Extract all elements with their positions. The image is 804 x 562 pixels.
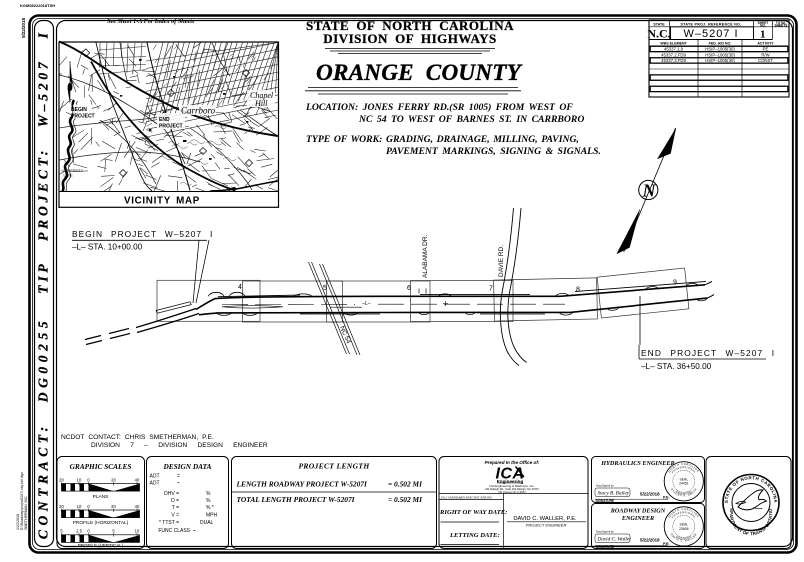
svg-text:PROFILE (HORIZONTAL): PROFILE (HORIZONTAL) bbox=[73, 520, 129, 526]
svg-text:TIP PROJECT: W–5207 I: TIP PROJECT: W–5207 I bbox=[36, 29, 51, 293]
svg-text:0: 0 bbox=[87, 477, 90, 482]
svg-text:% *: % * bbox=[206, 505, 214, 511]
svg-text:= 0.502 MI: = 0.502 MI bbox=[388, 480, 423, 489]
svg-text:8: 8 bbox=[576, 287, 580, 294]
svg-text:KGM05222018TSH: KGM05222018TSH bbox=[20, 3, 55, 8]
svg-text:DocuSigned by:: DocuSigned by: bbox=[596, 529, 615, 533]
svg-text:PROFILE (VERTICAL): PROFILE (VERTICAL) bbox=[78, 543, 124, 548]
svg-text:CONTRACT: DG00255: CONTRACT: DG00255 bbox=[36, 317, 51, 539]
svg-text:Prepared In the Office of:: Prepared In the Office of: bbox=[485, 460, 540, 465]
svg-text:20: 20 bbox=[111, 477, 116, 482]
svg-text:Stacy B. Bailey: Stacy B. Bailey bbox=[598, 490, 630, 496]
svg-text:ORANGE COUNTY: ORANGE COUNTY bbox=[316, 60, 523, 86]
svg-text:MPH: MPH bbox=[206, 513, 218, 519]
svg-text:Carrboro: Carrboro bbox=[181, 106, 216, 116]
svg-text:R/W: R/W bbox=[761, 52, 770, 57]
svg-text:SMETHERMAN, INC.: SMETHERMAN, INC. bbox=[24, 495, 28, 530]
svg-text:45337.1.9: 45337.1.9 bbox=[664, 47, 684, 52]
svg-text:–L– STA. 10+00.00: –L– STA. 10+00.00 bbox=[72, 243, 143, 252]
svg-text:NCDOT CONTACT: CHRIS SMETHERM: NCDOT CONTACT: CHRIS SMETHERMAN, P.E. bbox=[61, 434, 214, 441]
svg-text:5: 5 bbox=[60, 529, 63, 534]
svg-text:ADT: ADT bbox=[150, 474, 160, 480]
svg-text:ALABAMA DR.: ALABAMA DR. bbox=[422, 234, 429, 278]
svg-text:RIGHT OF WAY DATE:: RIGHT OF WAY DATE: bbox=[439, 509, 507, 516]
svg-text:20: 20 bbox=[59, 477, 64, 482]
svg-text:2.5: 2.5 bbox=[76, 529, 82, 534]
svg-text:40: 40 bbox=[135, 477, 140, 482]
svg-text:23606: 23606 bbox=[679, 527, 689, 531]
svg-text:HSIP–1005(30): HSIP–1005(30) bbox=[705, 52, 735, 57]
svg-text:GRAPHIC SCALES: GRAPHIC SCALES bbox=[70, 462, 132, 471]
svg-text:PROJECT ENGINEER: PROJECT ENGINEER bbox=[526, 523, 567, 528]
svg-text:LETTING DATE:: LETTING DATE: bbox=[449, 532, 500, 539]
svg-text:DHV =: DHV = bbox=[164, 491, 179, 497]
svg-text:SIGNATURE: SIGNATURE bbox=[596, 545, 615, 549]
svg-text:40: 40 bbox=[135, 504, 140, 509]
svg-text:DocuSigned by:: DocuSigned by: bbox=[596, 483, 615, 487]
svg-text:V =: V = bbox=[171, 513, 179, 519]
svg-text:0: 0 bbox=[87, 504, 90, 509]
svg-text:See Sheet 1-A For Index of She: See Sheet 1-A For Index of Sheets bbox=[107, 18, 195, 25]
svg-text:HSIP–1005(30): HSIP–1005(30) bbox=[705, 58, 735, 63]
svg-text:DIVISION 7 – DIVISION DESI: DIVISION 7 – DIVISION DESIGN ENGINEER bbox=[91, 442, 268, 449]
svg-text:David C. Waller: David C. Waller bbox=[597, 536, 633, 542]
svg-text:5/22/2018: 5/22/2018 bbox=[21, 17, 26, 38]
svg-text:10: 10 bbox=[77, 477, 82, 482]
svg-text:DUAL: DUAL bbox=[200, 520, 214, 526]
svg-text:ACTIVITY: ACTIVITY bbox=[757, 41, 774, 45]
svg-text:P.E.: P.E. bbox=[663, 496, 670, 500]
svg-text:ADT: ADT bbox=[150, 481, 160, 487]
svg-text:* TTST =: * TTST = bbox=[159, 520, 179, 526]
svg-text:PROJECT: PROJECT bbox=[159, 124, 183, 130]
svg-text:%: % bbox=[206, 491, 211, 497]
svg-text:LAKE: LAKE bbox=[64, 173, 74, 177]
svg-text:NC License No. F-0672: NC License No. F-0672 bbox=[498, 490, 526, 494]
svg-text:CONST: CONST bbox=[758, 58, 773, 63]
svg-text:NC 54: NC 54 bbox=[338, 325, 352, 345]
svg-text:1: 1 bbox=[760, 28, 766, 40]
svg-text:ENGINEER: ENGINEER bbox=[621, 515, 654, 522]
svg-text:PE: PE bbox=[763, 47, 769, 52]
svg-text:DAVIE RD.: DAVIE RD. bbox=[498, 245, 505, 277]
svg-text:10: 10 bbox=[135, 529, 140, 534]
svg-text:HSIP–1005(30): HSIP–1005(30) bbox=[705, 47, 735, 52]
svg-text:–L–: –L– bbox=[362, 301, 371, 307]
svg-text:HYDRAULICS ENGINEER: HYDRAULICS ENGINEER bbox=[600, 460, 674, 467]
svg-text:Hill: Hill bbox=[254, 99, 268, 108]
svg-text:20: 20 bbox=[111, 504, 116, 509]
svg-text:5/22/2018: 5/22/2018 bbox=[640, 492, 660, 497]
svg-text:N: N bbox=[642, 181, 657, 201]
svg-text:PAVEMENT MARKINGS, SIGNING & S: PAVEMENT MARKINGS, SIGNING & SIGNALS. bbox=[386, 146, 601, 157]
svg-text:45337.3.FD9: 45337.3.FD9 bbox=[661, 58, 686, 63]
svg-text:END: END bbox=[159, 117, 170, 123]
svg-text:SHEETS: SHEETS bbox=[775, 24, 788, 28]
svg-text:END PROJECT W–5207 I: END PROJECT W–5207 I bbox=[641, 348, 775, 358]
svg-text:–: – bbox=[193, 528, 196, 534]
svg-text:NC 54 TO WEST OF BARNES ST. IN: NC 54 TO WEST OF BARNES ST. IN CARRBORO bbox=[358, 114, 584, 125]
svg-text:4: 4 bbox=[238, 284, 242, 291]
svg-text:=: = bbox=[177, 474, 180, 480]
svg-text:%: % bbox=[206, 498, 211, 504]
svg-text:TYPE OF WORK: GRADING, DRAINAG: TYPE OF WORK: GRADING, DRAINAGE, MILLING… bbox=[306, 134, 579, 145]
svg-text:T =: T = bbox=[172, 505, 179, 511]
svg-text:9: 9 bbox=[673, 280, 677, 287]
svg-text:2012 STANDARD SPECIFICATIONS: 2012 STANDARD SPECIFICATIONS bbox=[441, 495, 493, 499]
svg-text:BEGIN PROJECT W–5207 I: BEGIN PROJECT W–5207 I bbox=[72, 229, 213, 239]
svg-text:LOCATION: JONES FERRY RD.(SR 1: LOCATION: JONES FERRY RD.(SR 1005) FROM … bbox=[305, 102, 573, 113]
svg-text:W–5207 I: W–5207 I bbox=[683, 28, 738, 40]
svg-text:PROJECT: PROJECT bbox=[71, 114, 95, 120]
svg-text:SIGNATURE: SIGNATURE bbox=[596, 499, 615, 503]
svg-text:45337.2.FD9: 45337.2.FD9 bbox=[661, 52, 686, 57]
svg-text:VICINITY MAP: VICINITY MAP bbox=[124, 196, 200, 207]
svg-text:7: 7 bbox=[489, 286, 493, 293]
svg-text:WBS ELEMENT: WBS ELEMENT bbox=[660, 41, 687, 45]
svg-text:PLANS: PLANS bbox=[93, 494, 109, 500]
svg-text:6: 6 bbox=[407, 285, 411, 292]
svg-text:–: – bbox=[177, 481, 180, 487]
svg-text:NO.: NO. bbox=[760, 24, 766, 28]
svg-text:5: 5 bbox=[112, 529, 115, 534]
svg-text:BEGIN: BEGIN bbox=[71, 107, 87, 113]
svg-text:DESIGN DATA: DESIGN DATA bbox=[162, 462, 211, 471]
svg-text:STATE PROJ. REFERENCE NO.: STATE PROJ. REFERENCE NO. bbox=[680, 22, 741, 26]
svg-text:FED. AID NO.: FED. AID NO. bbox=[709, 41, 732, 45]
svg-text:N.C.: N.C. bbox=[647, 27, 670, 41]
svg-text:TOTAL LENGTH PROJECT W-5207: TOTAL LENGTH PROJECT W-5207I bbox=[237, 495, 356, 504]
svg-text:PROJECT LENGTH: PROJECT LENGTH bbox=[298, 462, 370, 471]
svg-text:ROADWAY DESIGN: ROADWAY DESIGN bbox=[610, 508, 666, 515]
svg-text:5/22/2018: 5/22/2018 bbox=[640, 538, 660, 543]
svg-text:10: 10 bbox=[77, 504, 82, 509]
svg-text:24451: 24451 bbox=[679, 482, 689, 486]
svg-text:LENGTH ROADWAY PROJECT W-52: LENGTH ROADWAY PROJECT W-5207I bbox=[236, 480, 368, 489]
svg-text:20: 20 bbox=[59, 504, 64, 509]
svg-text:D =: D = bbox=[171, 498, 179, 504]
svg-text:DAVID C. WALLER, P.E.: DAVID C. WALLER, P.E. bbox=[513, 516, 577, 522]
svg-text:–L– STA. 36+50.00: –L– STA. 36+50.00 bbox=[641, 362, 712, 371]
svg-text:FUNC CLASS: FUNC CLASS bbox=[158, 528, 190, 534]
svg-text:= 0.502 MI: = 0.502 MI bbox=[388, 495, 423, 504]
svg-text:0: 0 bbox=[87, 529, 90, 534]
svg-text:DIVISION OF HIGHWAYS: DIVISION OF HIGHWAYS bbox=[323, 31, 497, 46]
